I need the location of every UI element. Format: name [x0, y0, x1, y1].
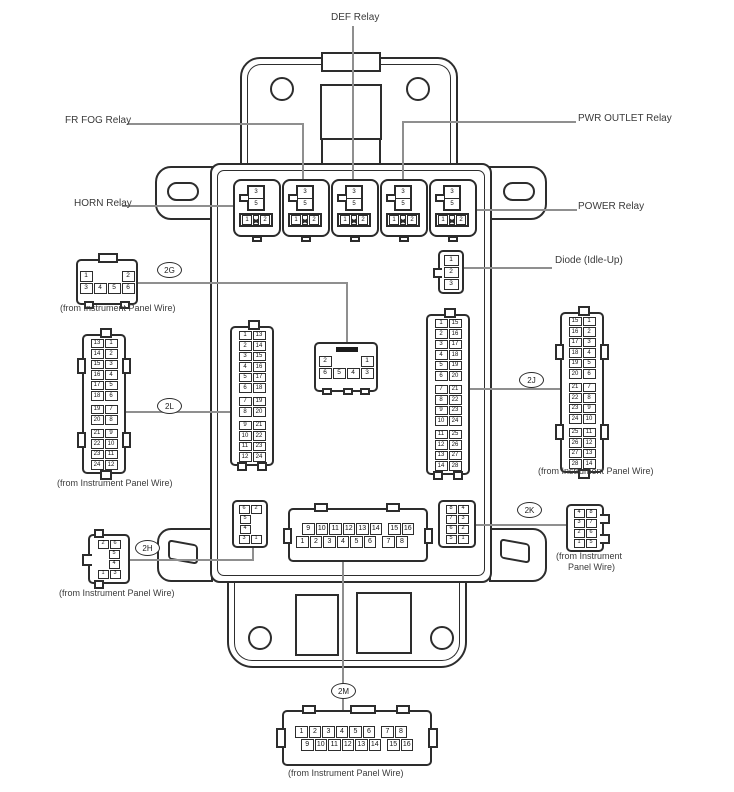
connector-2g-socket-foot [322, 388, 332, 395]
pin-row: 1226 [434, 440, 462, 451]
pin-group: 1125122613271428 [434, 429, 462, 471]
relay-contact-pins: 1 2 [386, 213, 420, 227]
pin-row: 1123 [238, 441, 266, 452]
power-leader [473, 209, 577, 211]
pin-row: 910111213141516 [296, 522, 421, 535]
oval-2l: 2L [157, 398, 182, 414]
h2-leader-h [120, 559, 254, 561]
pin-cell: 7 [586, 519, 597, 528]
pin-cell: 8 [435, 395, 448, 405]
pin-cell: 19 [253, 397, 266, 407]
pin-cell: 7 [239, 397, 252, 407]
connector-2l-arm [122, 358, 131, 374]
relay-x-mark [351, 215, 357, 225]
pin-row: 214 [238, 341, 266, 352]
pin-cell: 8 [446, 505, 457, 514]
relay-x-mark [253, 215, 259, 225]
pin-row: 21 [318, 355, 374, 367]
pin-row: 26 [97, 539, 121, 549]
pin-cell: 11 [435, 430, 448, 440]
oval-2j-text: 2J [527, 376, 535, 385]
h2-leader-v [252, 547, 254, 560]
connector-2m-wire: 12345678910111213141516 [282, 710, 432, 766]
pin-cell: 2 [444, 267, 459, 278]
relay-key-tab [386, 194, 395, 202]
pin-row: 2511 [568, 427, 596, 438]
connector-2m-socket-lug [386, 503, 400, 512]
relay-coil-pins: 3 5 [345, 185, 363, 211]
pin-row: 12345678 [296, 535, 421, 548]
pin-row: 3 [443, 278, 459, 290]
pin-row: 184 [568, 348, 596, 359]
pin-gap [332, 355, 346, 367]
pin-cell: 26 [569, 438, 582, 448]
bottom-bracket-hole-left [248, 626, 272, 650]
pin-row: 315 [238, 351, 266, 362]
relay-pin-3: 3 [396, 187, 410, 199]
connector-2l-arm [77, 432, 86, 448]
pin-group: 197208 [90, 404, 118, 425]
pin-cell: 4 [239, 362, 252, 372]
pin-cell: 27 [449, 451, 462, 461]
relay-nub [448, 236, 458, 242]
pin-row: 5 [97, 549, 121, 559]
relay-socket-def: 3 5 1 2 [331, 179, 379, 237]
pin-cell: 14 [435, 461, 448, 471]
pin-cell: 2 [122, 271, 135, 282]
def-relay-leader [352, 26, 354, 182]
connector-2m-socket-side-tab [283, 528, 292, 544]
relay-pin-1: 1 [340, 215, 350, 225]
label-from-ipw-2j: (from Instrument Panel Wire) [538, 466, 654, 476]
relay-x-mark [400, 215, 406, 225]
pin-cell: 9 [583, 404, 596, 414]
relay-pin-2: 2 [456, 215, 466, 225]
pin-cell: 1 [251, 535, 262, 544]
pin-group: 48372615 [573, 508, 597, 548]
pin-row: 923 [434, 405, 462, 416]
connector-2l-arm [77, 358, 86, 374]
relay-pin-2: 2 [358, 215, 368, 225]
connector-2h-side-tab [82, 554, 92, 566]
connector-2l-socket-foot [257, 462, 267, 471]
pin-row: 822 [434, 395, 462, 406]
pin-row: 618 [238, 383, 266, 394]
connector-2g-socket: 216543 [314, 342, 378, 392]
pin-cell: 17 [449, 340, 462, 350]
pin-cell: 18 [253, 383, 266, 393]
pin-cell: 1 [296, 536, 309, 548]
pin-cell: 3 [322, 726, 335, 738]
relay-box-diagram: 3 5 1 2 3 5 1 2 3 5 1 2 [0, 0, 734, 792]
oval-2h: 2H [135, 540, 160, 556]
pin-cell: 24 [253, 452, 266, 462]
label-from-ipw-2g: (from Instrument Panel Wire) [60, 303, 176, 313]
connector-2l-top-tab [100, 328, 112, 338]
pin-row: 719 [238, 396, 266, 407]
pin-row: 13 [97, 569, 121, 579]
connector-2k-side-tab [600, 534, 610, 544]
pin-cell: 19 [91, 405, 104, 415]
connector-2k-side-tab [600, 514, 610, 524]
pin-cell: 20 [569, 369, 582, 379]
pin-row: 131 [90, 338, 118, 349]
pin-cell: 2 [583, 327, 596, 337]
diode-side-tab [433, 268, 442, 278]
pin-cell: 1 [444, 255, 459, 266]
pin-cell: 4 [458, 505, 469, 514]
connector-2j-arm [600, 344, 609, 360]
pin-cell: 27 [569, 449, 582, 459]
pin-cell: 7 [435, 385, 448, 395]
relay-pin-3: 3 [298, 187, 312, 199]
pin-cell: 2 [98, 540, 109, 549]
pin-cell: 13 [91, 339, 104, 349]
pin-row: 73 [445, 514, 469, 524]
connector-2l-socket-foot [237, 462, 247, 471]
connector-2h-lug [94, 529, 104, 538]
pin-cell: 14 [369, 739, 382, 751]
pin-cell: 4 [337, 536, 350, 548]
relay-coil-pins: 3 5 [443, 185, 461, 211]
bottom-bracket-inner-outline [234, 575, 460, 661]
pin-cell: 21 [569, 383, 582, 393]
connector-2l-socket: 113214315416517618719820921102211231224 [230, 326, 274, 466]
relay-pin-1: 1 [389, 215, 399, 225]
pin-cell: 3 [458, 515, 469, 524]
pin-cell: 2 [239, 341, 252, 351]
pin-row: 173 [568, 337, 596, 348]
pin-cell: 8 [239, 407, 252, 417]
pin-row: 197 [90, 404, 118, 415]
pin-group: 7218229231024 [434, 384, 462, 426]
pin-cell: 8 [583, 393, 596, 403]
pin-cell: 10 [105, 439, 118, 449]
pin-cell: 10 [239, 431, 252, 441]
pin-row: 921 [238, 420, 266, 431]
pin-row: 620 [434, 371, 462, 382]
pin-cell: 11 [105, 450, 118, 460]
pin-cell: 14 [253, 341, 266, 351]
top-bracket-rib-left [321, 140, 323, 164]
pin-group: 151162173184195206 [568, 316, 596, 379]
pin-row: 12 [79, 270, 135, 282]
pin-row: 175 [90, 380, 118, 391]
relay-pin-3: 3 [347, 187, 361, 199]
relay-coil-pins: 3 5 [247, 185, 265, 211]
pin-cell: 15 [387, 739, 400, 751]
pin-blank [409, 536, 420, 546]
pin-cell: 1 [239, 331, 252, 341]
relay-pin-5: 5 [396, 199, 410, 210]
pin-cell: 9 [301, 739, 314, 751]
pin-cell: 12 [342, 739, 355, 751]
pin-cell: 3 [574, 519, 585, 528]
pin-row: 206 [568, 369, 596, 380]
pin-cell: 14 [370, 523, 383, 535]
label-from-ipw-2h: (from Instrument Panel Wire) [59, 588, 175, 598]
pwr-outlet-leader-h [403, 121, 576, 123]
pin-row: 517 [238, 372, 266, 383]
pin-row: 115 [434, 318, 462, 329]
pin-cell: 3 [435, 340, 448, 350]
connector-2m-side-tab [428, 728, 438, 748]
pin-gap [382, 738, 387, 751]
pin-cell: 6 [239, 383, 252, 393]
pin-cell: 8 [396, 536, 409, 548]
oval-2k: 2K [517, 502, 542, 518]
pin-cell: 3 [323, 536, 336, 548]
pin-row: 164 [90, 370, 118, 381]
pin-row: 418 [434, 350, 462, 361]
label-fr-fog-relay: FR FOG Relay [65, 115, 131, 126]
pin-cell: 2 [458, 525, 469, 534]
pin-cell: 9 [435, 406, 448, 416]
pin-cell: 24 [91, 460, 104, 470]
pin-cell: 6 [446, 525, 457, 534]
pin-row: 48 [573, 508, 597, 518]
pin-cell: 1 [295, 726, 308, 738]
pin-cell: 21 [91, 429, 104, 439]
relay-key-tab [435, 194, 444, 202]
pin-cell: 1 [574, 539, 585, 548]
pin-cell: 11 [239, 442, 252, 452]
pin-row: 216 [434, 329, 462, 340]
pin-cell: 6 [435, 371, 448, 381]
pin-cell: 9 [105, 429, 118, 439]
pin-row: 2311 [90, 449, 118, 460]
connector-2j-arm [600, 424, 609, 440]
pin-cell: 19 [569, 359, 582, 369]
pin-row: 62 [238, 504, 262, 514]
pin-row: 37 [573, 518, 597, 528]
pin-row: 4 [238, 524, 262, 534]
pin-cell: 22 [449, 395, 462, 405]
pin-cell: 23 [253, 442, 266, 452]
pin-cell: 7 [583, 383, 596, 393]
pin-row: 1224 [238, 452, 266, 463]
pin-cell: 5 [583, 359, 596, 369]
pin-cell: 3 [110, 570, 121, 579]
pin-cell: 6 [105, 391, 118, 401]
pin-cell: 5 [239, 373, 252, 383]
pin-row: 228 [568, 393, 596, 404]
relay-key-tab [288, 194, 297, 202]
relay-pin-2: 2 [260, 215, 270, 225]
pin-row: 1125 [434, 429, 462, 440]
relay-socket-power: 3 5 1 2 [429, 179, 477, 237]
connector-2l-socket-top-tab [248, 320, 260, 330]
relay-pin-3: 3 [445, 187, 459, 199]
pin-cell: 16 [402, 523, 415, 535]
pin-row: 910111213141516 [295, 738, 420, 751]
top-bracket-center-rect [320, 84, 382, 140]
pin-cell: 24 [449, 416, 462, 426]
pin-group: 84736251 [445, 504, 469, 544]
g2-leader-h [132, 282, 347, 284]
bottom-bracket-cutout-right [356, 592, 412, 654]
pin-cell: 1 [105, 339, 118, 349]
pin-gap [383, 522, 388, 535]
pin-cell: 6 [364, 536, 377, 548]
bottom-bracket-hole-right [430, 626, 454, 650]
connector-2l-wire: 131142153164175186197208219221023112412 [82, 334, 126, 474]
connector-2m-socket-side-tab [424, 528, 433, 544]
pin-row: 219 [90, 428, 118, 439]
pin-cell: 2 [310, 536, 323, 548]
relay-socket-horn: 3 5 1 2 [233, 179, 281, 237]
pin-cell: 13 [435, 451, 448, 461]
pin-cell: 5 [240, 515, 251, 524]
pin-group: 216543 [318, 355, 374, 379]
pin-cell: 16 [253, 362, 266, 372]
pin-group: 625431 [238, 504, 262, 544]
pin-cell: 12 [435, 440, 448, 450]
pin-cell: 5 [108, 283, 121, 294]
relay-pin-1: 1 [438, 215, 448, 225]
horn-leader [122, 205, 238, 207]
relay-pin-1: 1 [242, 215, 252, 225]
pin-row: 2612 [568, 438, 596, 449]
pin-cell: 15 [569, 317, 582, 327]
pin-row: 186 [90, 391, 118, 402]
g2-leader-v [346, 282, 348, 342]
oval-2h-text: 2H [142, 544, 152, 553]
label-from-ipw-2k-line1: (from Instrument [556, 551, 622, 561]
pin-cell: 4 [94, 283, 107, 294]
pin-group: 12345678910111213141516 [295, 725, 420, 751]
relay-nub [399, 236, 409, 242]
upper-wing-left-hole [167, 182, 199, 201]
pin-cell: 6 [586, 529, 597, 538]
oval-2m: 2M [331, 683, 356, 699]
connector-2j-arm [555, 424, 564, 440]
connector-2m-socket: 91011121314151612345678 [288, 508, 428, 562]
label-horn-relay: HORN Relay [74, 198, 132, 209]
pin-cell: 3 [239, 535, 250, 544]
pin-group: 131142153164175186 [90, 338, 118, 401]
pin-cell: 26 [449, 440, 462, 450]
pin-cell: 10 [315, 739, 328, 751]
pin-cell: 8 [105, 415, 118, 425]
pin-cell: 18 [449, 350, 462, 360]
pin-cell: 14 [91, 349, 104, 359]
label-diode-idle-up: Diode (Idle-Up) [555, 255, 623, 266]
pin-cell: 11 [329, 523, 342, 535]
relay-nub [350, 236, 360, 242]
pin-cell: 4 [574, 509, 585, 518]
pin-row: 151 [568, 316, 596, 327]
pin-cell: 5 [350, 536, 363, 548]
top-bracket-hole-right [406, 77, 430, 101]
pin-cell: 5 [435, 361, 448, 371]
pin-group: 123456 [79, 270, 135, 294]
pin-cell: 10 [583, 414, 596, 424]
pin-row: 31 [238, 534, 262, 544]
pin-cell: 3 [105, 360, 118, 370]
pin-group: 219221023112412 [90, 428, 118, 470]
pin-row: 317 [434, 339, 462, 350]
relay-contact-pins: 1 2 [239, 213, 273, 227]
pin-cell: 19 [449, 361, 462, 371]
pin-cell: 4 [240, 525, 251, 534]
pin-cell: 17 [253, 373, 266, 383]
pin-row: 113 [238, 330, 266, 341]
pin-cell: 18 [569, 348, 582, 358]
pin-group: 123 [443, 254, 459, 290]
oval-2k-text: 2K [525, 506, 535, 515]
j2-leader [470, 388, 562, 390]
pin-cell: 12 [105, 460, 118, 470]
pin-cell: 13 [583, 449, 596, 459]
pin-cell: 9 [239, 421, 252, 431]
pin-cell: 3 [444, 279, 459, 290]
pin-gap [107, 270, 121, 282]
pin-cell: 20 [449, 371, 462, 381]
pin-cell: 20 [91, 415, 104, 425]
pin-cell: 8 [586, 509, 597, 518]
pin-cell: 7 [105, 405, 118, 415]
pin-cell: 4 [105, 370, 118, 380]
pin-cell: 4 [109, 560, 120, 569]
pin-cell: 15 [253, 352, 266, 362]
pin-cell: 6 [363, 726, 376, 738]
pin-group: 91011121314151612345678 [296, 522, 421, 548]
relay-pin-1: 1 [291, 215, 301, 225]
connector-2h-socket: 625431 [232, 500, 268, 548]
pin-blank [99, 560, 108, 567]
pin-cell: 23 [91, 450, 104, 460]
connector-2j-socket-top-tab [444, 308, 456, 318]
label-from-ipw-2l: (from Instrument Panel Wire) [57, 478, 173, 488]
connector-2j-top-tab [578, 306, 590, 316]
pin-cell: 5 [446, 535, 457, 544]
pin-row: 15 [573, 538, 597, 548]
pin-row: 26 [573, 528, 597, 538]
pin-cell: 2 [105, 349, 118, 359]
pin-row: 6543 [318, 367, 374, 379]
pin-cell: 3 [239, 352, 252, 362]
oval-2l-text: 2L [165, 402, 174, 411]
relay-x-mark [449, 215, 455, 225]
pin-cell: 4 [347, 368, 360, 379]
relay-pin-5: 5 [249, 199, 263, 210]
pin-cell: 1 [458, 535, 469, 544]
pin-cell: 10 [435, 416, 448, 426]
pin-cell: 11 [328, 739, 341, 751]
pin-cell: 1 [98, 570, 109, 579]
oval-2j: 2J [519, 372, 544, 388]
pin-cell: 23 [569, 404, 582, 414]
pin-cell: 21 [449, 385, 462, 395]
relay-x-mark [302, 215, 308, 225]
pin-cell: 15 [449, 319, 462, 329]
pin-cell: 13 [253, 331, 266, 341]
label-from-ipw-2k-line2: Panel Wire) [568, 562, 615, 572]
connector-2j-socket: 1152163174185196207218229231024112512261… [426, 314, 470, 475]
pin-cell: 2 [309, 726, 322, 738]
pin-group: 115216317418519620 [434, 318, 462, 381]
pin-cell: 9 [302, 523, 315, 535]
pin-cell: 2 [435, 329, 448, 339]
relay-pin-5: 5 [445, 199, 459, 210]
pin-row: 1428 [434, 461, 462, 472]
connector-2l-arm [122, 432, 131, 448]
pin-group: 921102211231224 [238, 420, 266, 462]
connector-2g-wire: 123456 [76, 259, 138, 305]
pin-row: 3456 [79, 282, 135, 294]
connector-2j-wire: 1511621731841952062172282392410251126122… [560, 312, 604, 473]
